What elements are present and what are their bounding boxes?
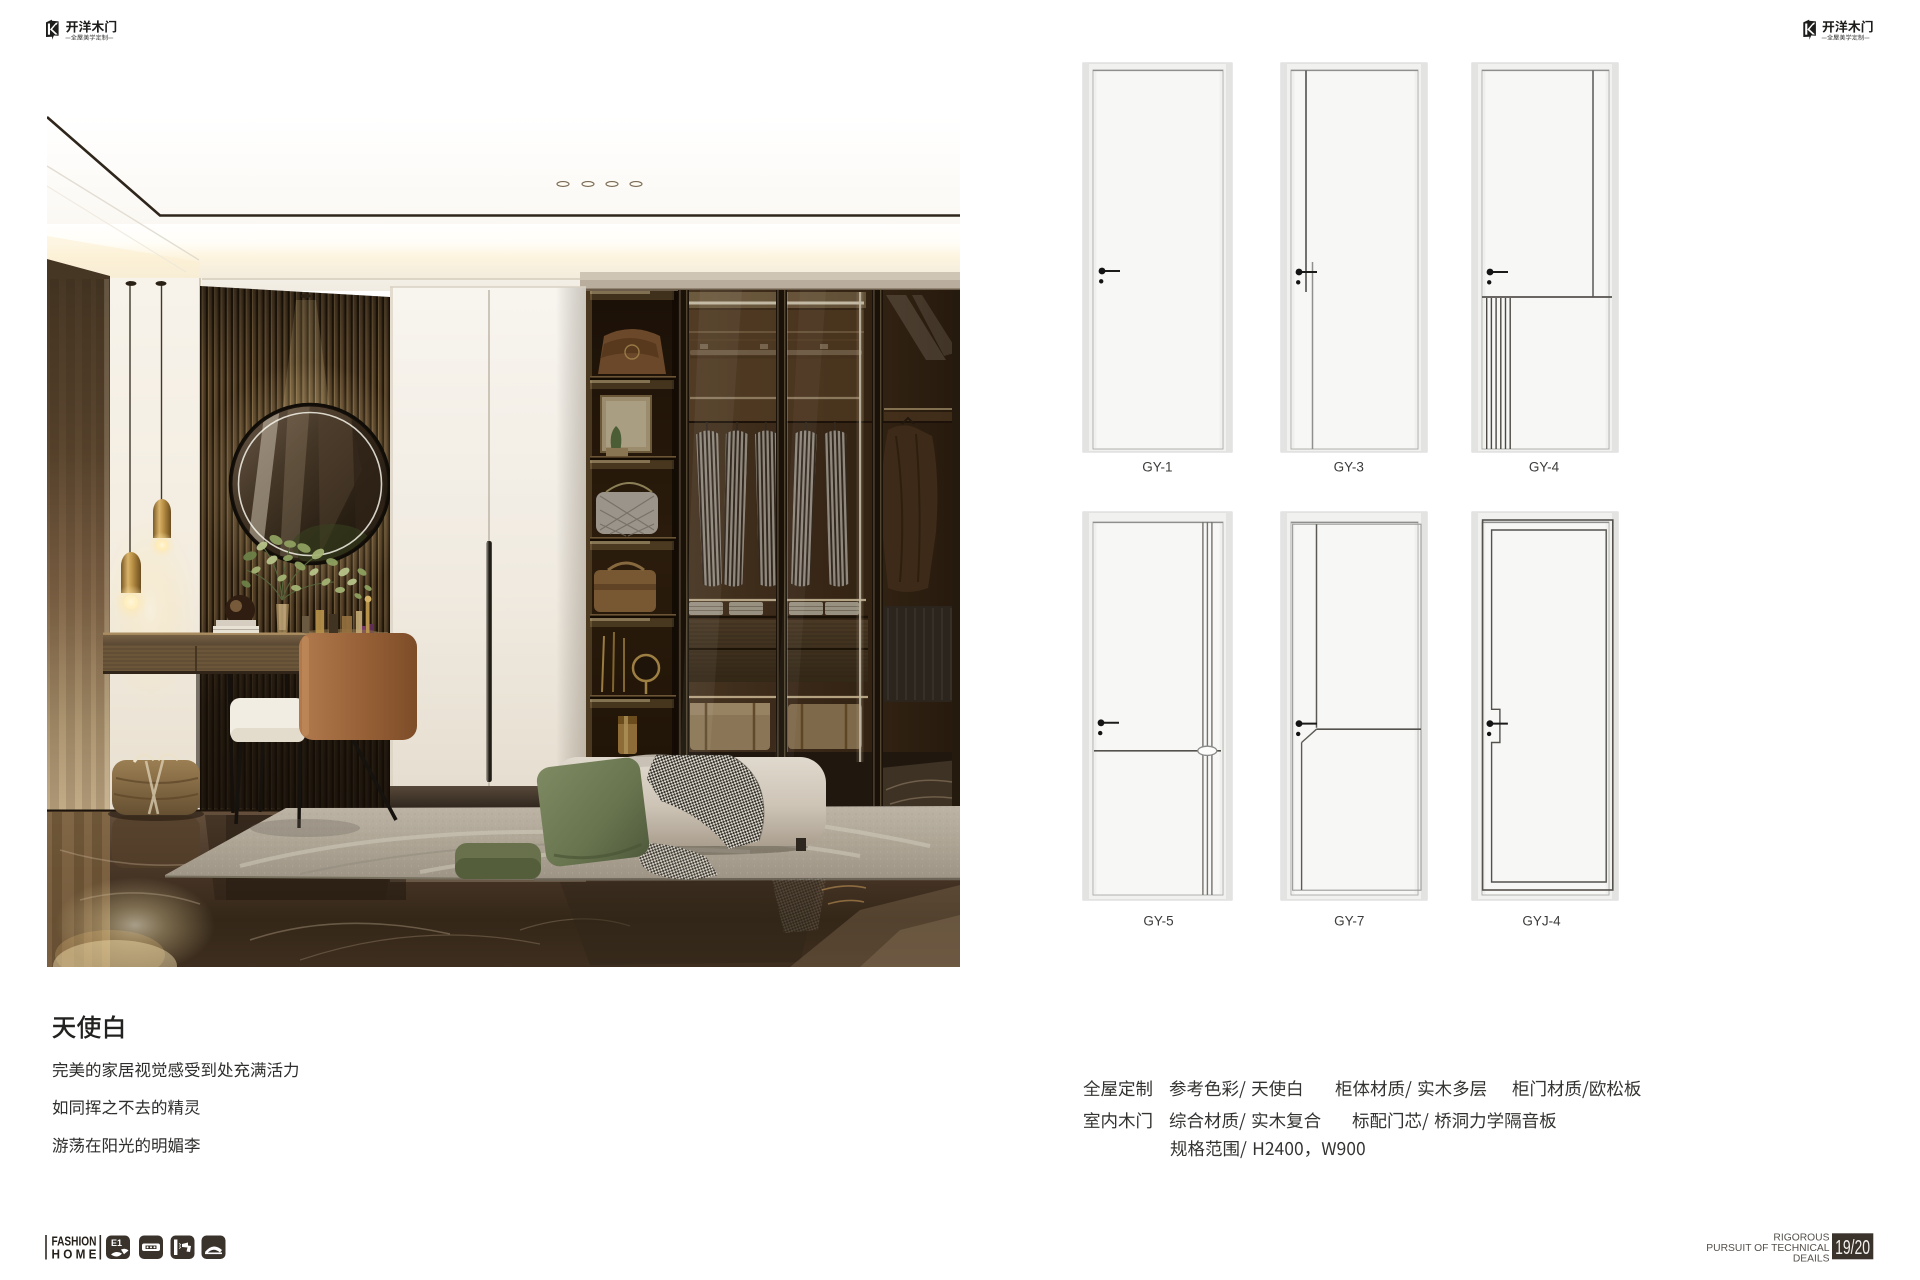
svg-text:PURSUIT OF TECHNICAL: PURSUIT OF TECHNICAL: [1706, 1243, 1829, 1254]
svg-text:RIGOROUS: RIGOROUS: [1773, 1232, 1829, 1243]
svg-text:FASHION: FASHION: [52, 1235, 97, 1249]
svg-text:GY-5: GY-5: [1143, 914, 1173, 929]
svg-text:E1: E1: [111, 1238, 122, 1248]
svg-text:GY-4: GY-4: [1529, 460, 1560, 475]
svg-text:19/20: 19/20: [1835, 1237, 1870, 1259]
svg-text:GY-1: GY-1: [1142, 460, 1172, 475]
svg-text:GY-7: GY-7: [1334, 914, 1364, 929]
svg-text:DEAILS: DEAILS: [1793, 1253, 1830, 1264]
svg-text:GY-3: GY-3: [1334, 460, 1364, 475]
svg-text:GYJ-4: GYJ-4: [1522, 914, 1561, 929]
svg-text:H O M E: H O M E: [52, 1248, 97, 1262]
